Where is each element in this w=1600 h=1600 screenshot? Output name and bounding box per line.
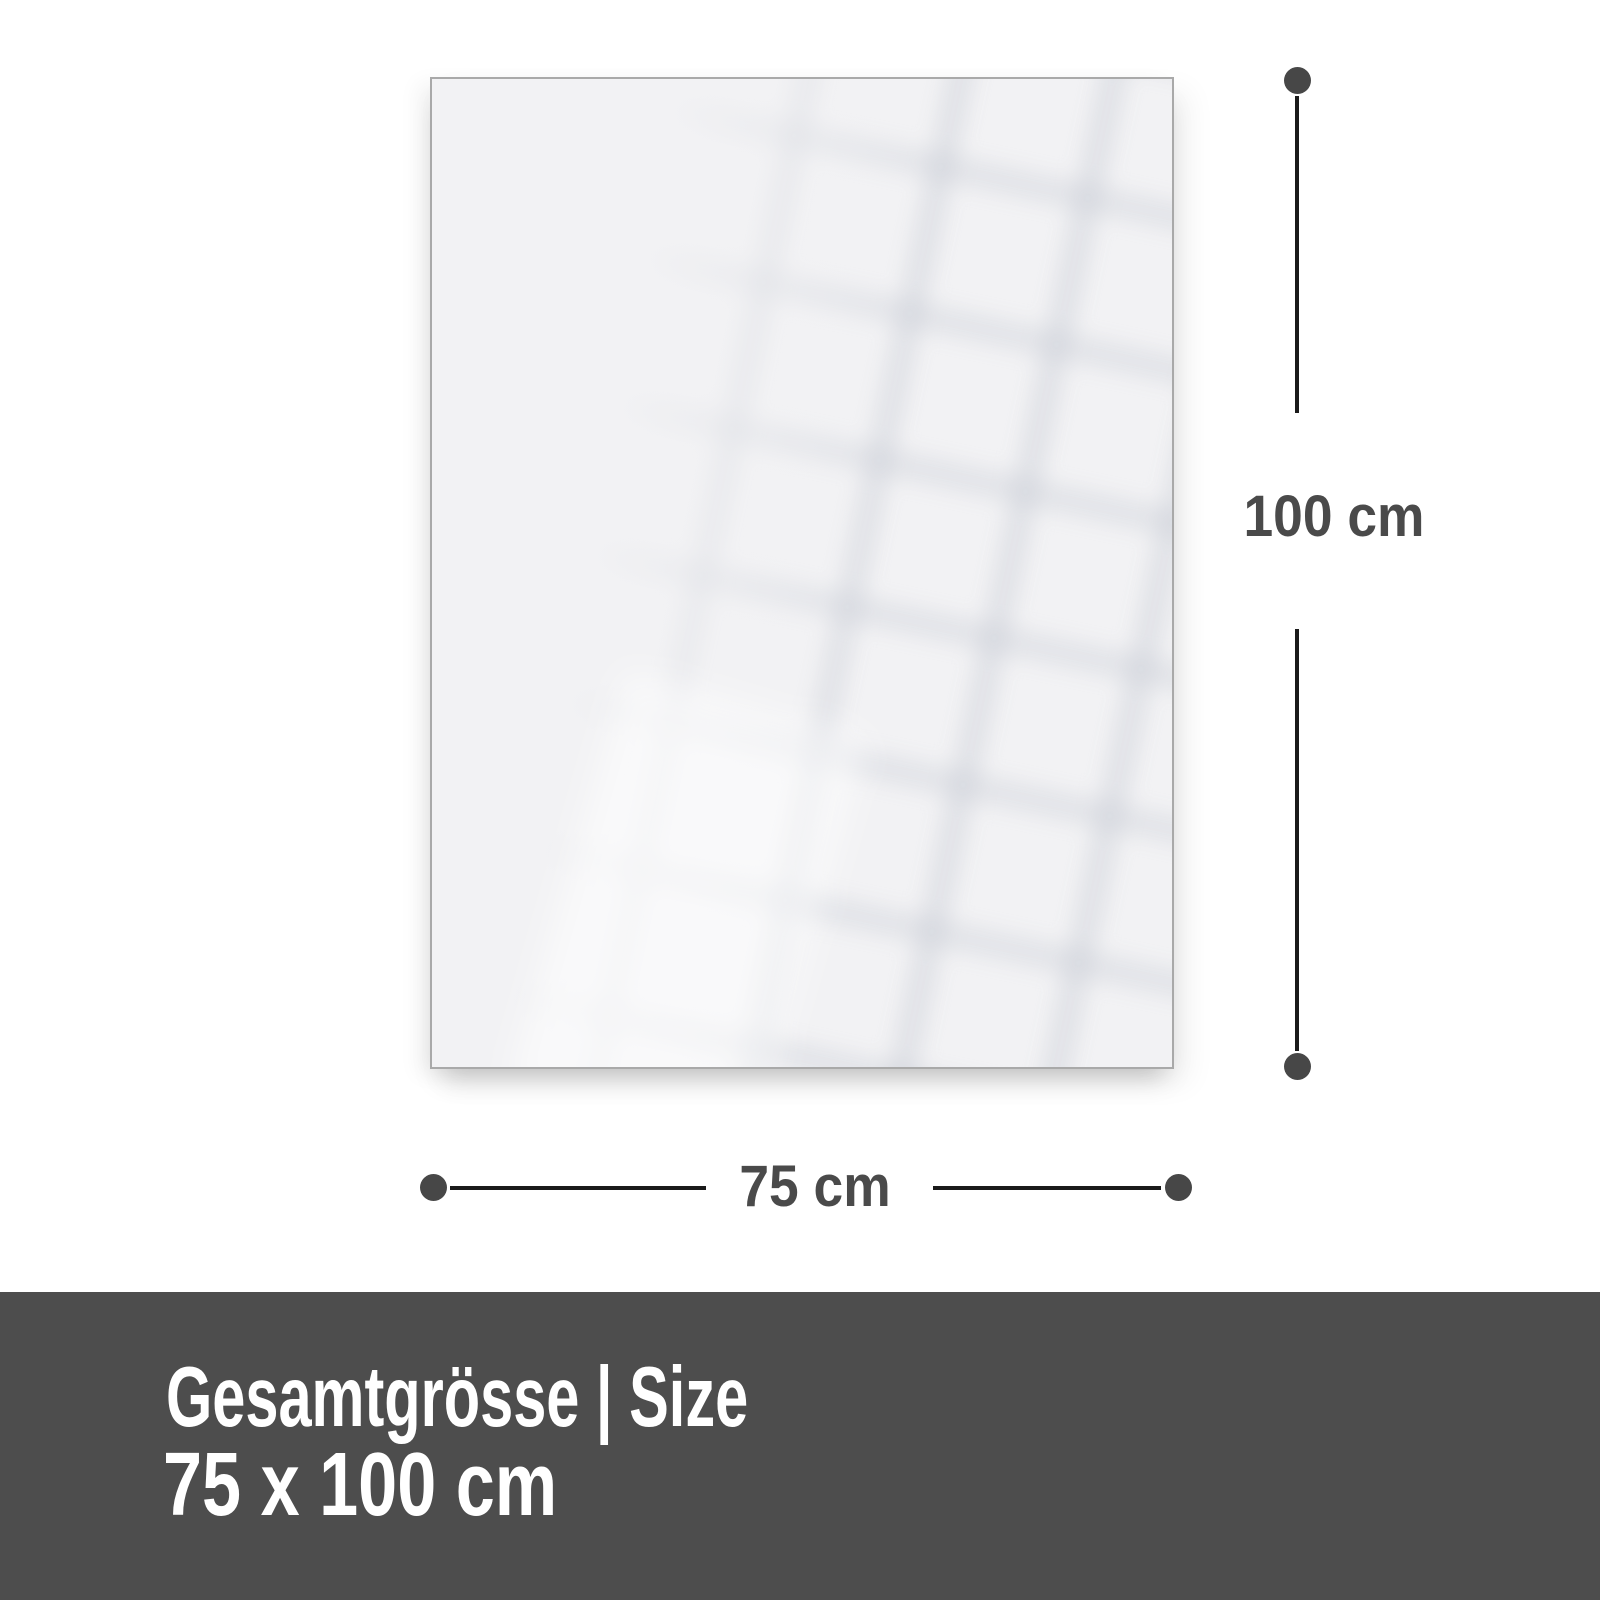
dimension-endpoint-dot <box>1165 1174 1192 1201</box>
glass-panel <box>430 77 1174 1069</box>
dimension-line-segment <box>933 1186 1161 1190</box>
size-banner-title: Gesamtgrösse | Size <box>166 1355 748 1440</box>
dimension-endpoint-dot <box>1284 67 1311 94</box>
dimension-endpoint-dot <box>1284 1053 1311 1080</box>
width-dimension-label: 75 cm <box>739 1158 890 1216</box>
dimension-line-segment <box>1295 96 1299 413</box>
size-banner-value: 75 x 100 cm <box>163 1440 557 1530</box>
height-dimension-label: 100 cm <box>1244 488 1425 546</box>
dimension-endpoint-dot <box>420 1174 447 1201</box>
dimension-line-segment <box>1295 629 1299 1051</box>
product-size-diagram: 100 cm 75 cm Gesamtgrösse | Size 75 x 10… <box>0 0 1600 1600</box>
dimension-line-segment <box>450 1186 706 1190</box>
